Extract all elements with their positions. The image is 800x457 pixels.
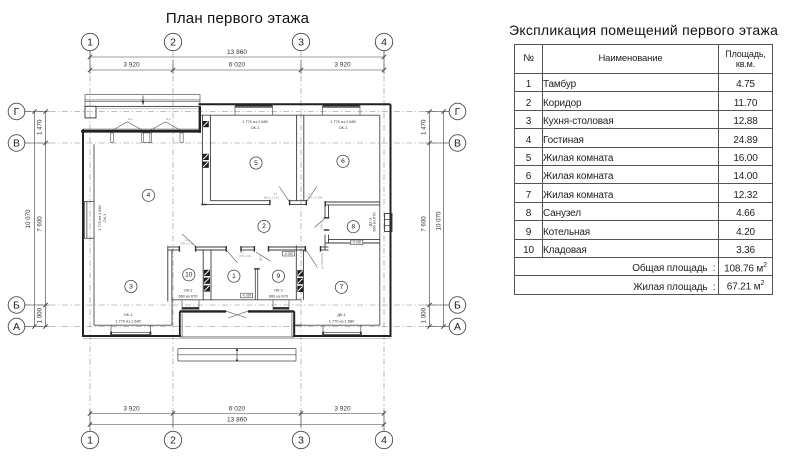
svg-text:ОК-2: ОК-2 [274, 287, 283, 292]
svg-text:Б: Б [13, 299, 20, 311]
svg-text:7 600: 7 600 [421, 216, 428, 232]
svg-text:3 920: 3 920 [334, 62, 351, 69]
svg-text:д-1 900х2100: д-1 900х2100 [320, 252, 324, 268]
svg-text:1 000: 1 000 [37, 307, 44, 323]
svg-text:3: 3 [129, 283, 133, 290]
svg-text:6: 6 [341, 158, 345, 165]
svg-text:Г: Г [455, 106, 461, 118]
svg-text:4: 4 [147, 192, 151, 199]
svg-text:ДВ-2: ДВ-2 [258, 255, 262, 261]
svg-text:ОК-1: ОК-1 [124, 312, 133, 317]
svg-text:900 х 2 100: 900 х 2 100 [308, 195, 323, 199]
svg-text:9: 9 [277, 273, 281, 280]
svg-text:2: 2 [170, 36, 176, 48]
svg-text:10: 10 [185, 272, 193, 279]
svg-text:1 470: 1 470 [421, 119, 428, 135]
svg-text:ОК-1: ОК-1 [251, 125, 260, 130]
svg-text:ОК-2: ОК-2 [184, 287, 193, 292]
svg-text:8: 8 [351, 224, 355, 231]
svg-text:А: А [13, 321, 20, 333]
svg-text:7 600: 7 600 [37, 216, 44, 232]
svg-text:1 000: 1 000 [421, 307, 428, 323]
svg-text:-0.020: -0.020 [352, 241, 361, 245]
svg-text:А-1: А-1 [240, 250, 245, 254]
svg-text:10 070: 10 070 [435, 211, 442, 230]
svg-text:10 070: 10 070 [25, 209, 32, 228]
svg-text:-0.020: -0.020 [242, 294, 251, 298]
svg-text:660 из 670: 660 из 670 [269, 294, 289, 299]
svg-text:7: 7 [340, 284, 344, 291]
svg-text:1 770 из 1 680: 1 770 из 1 680 [115, 319, 141, 324]
svg-text:А-1: А-1 [128, 117, 133, 121]
svg-text:ОК-1: ОК-1 [102, 214, 107, 223]
svg-text:ОК-1: ОК-1 [339, 125, 348, 130]
svg-text:3: 3 [298, 434, 304, 446]
svg-text:5: 5 [254, 160, 258, 167]
svg-text:900 х 2 100: 900 х 2 100 [264, 195, 279, 199]
svg-text:6 020: 6 020 [229, 62, 246, 69]
svg-text:3: 3 [298, 36, 304, 48]
svg-text:ДК-1: ДК-1 [337, 312, 345, 317]
svg-text:3 920: 3 920 [334, 405, 351, 412]
svg-text:6 020: 6 020 [229, 405, 246, 412]
svg-text:1 770 из 1 680: 1 770 из 1 680 [242, 119, 268, 124]
svg-text:Б: Б [454, 299, 461, 311]
svg-text:Г: Г [14, 106, 20, 118]
svg-text:13 860: 13 860 [227, 416, 247, 423]
svg-text:В: В [454, 137, 461, 149]
svg-text:А-1: А-1 [166, 117, 171, 121]
svg-text:790 х 2 10: 790 х 2 10 [239, 254, 252, 258]
svg-text:1: 1 [87, 36, 93, 48]
svg-text:4: 4 [381, 434, 387, 446]
svg-text:А: А [454, 321, 461, 333]
svg-text:790 х 2 10: 790 х 2 10 [180, 241, 194, 245]
svg-text:1 770 из 1 680: 1 770 из 1 680 [330, 119, 356, 124]
svg-text:-0.020: -0.020 [284, 252, 293, 256]
svg-text:660 из 670: 660 из 670 [178, 294, 198, 299]
svg-text:3 920: 3 920 [123, 62, 140, 69]
svg-text:660 из 670: 660 из 670 [372, 212, 377, 232]
svg-text:3 920: 3 920 [123, 405, 140, 412]
svg-text:4: 4 [381, 36, 387, 48]
svg-text:1: 1 [87, 434, 93, 446]
svg-text:13 860: 13 860 [227, 49, 247, 56]
svg-text:1 470: 1 470 [37, 119, 44, 135]
svg-text:2: 2 [170, 434, 176, 446]
svg-text:1: 1 [232, 273, 236, 280]
svg-text:В: В [13, 137, 20, 149]
svg-text:1 770 из 1 680: 1 770 из 1 680 [329, 319, 355, 324]
svg-text:ПФ-1: ПФ-1 [320, 222, 324, 229]
svg-text:2: 2 [262, 223, 266, 230]
